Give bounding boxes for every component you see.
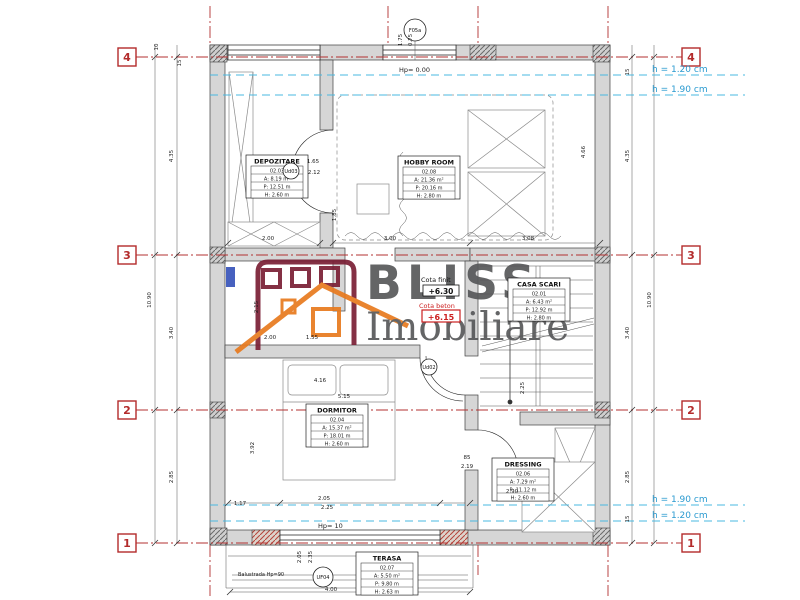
dimension-label: 2.85 <box>625 470 631 483</box>
room-label-dressing: DRESSING02.06A: 7.29 m²P: 11.12 mH: 2.60… <box>492 458 554 502</box>
element-tag-ud02: Ud02 <box>421 359 437 375</box>
room-code: 02.06 <box>516 472 530 478</box>
dimension-label: 2.05 <box>318 496 331 502</box>
svg-text:2: 2 <box>687 404 695 417</box>
dimension-label: 3.40 <box>169 326 175 339</box>
dimension-label: 1.55 <box>306 335 319 341</box>
room-code: 02.08 <box>422 170 436 176</box>
dimension-label: 2.00 <box>264 335 277 341</box>
dimension-label: 2.12 <box>308 170 320 176</box>
dimension-label: 3.92 <box>250 442 256 454</box>
room-height: H: 2.80 m <box>417 194 442 200</box>
logo-window-orange-icon <box>313 309 339 335</box>
room-height: H: 2.80 m <box>527 316 552 322</box>
room-name: DORMITOR <box>317 407 357 415</box>
svg-text:1: 1 <box>687 537 695 550</box>
room-code: 02.04 <box>330 418 344 424</box>
tag-label: F05a <box>409 28 421 34</box>
logo-window-icon <box>292 269 309 286</box>
room-area: A: 6.43 m² <box>526 300 552 306</box>
tag-label: UF04 <box>317 575 330 581</box>
dimension-label: 4.35 <box>169 149 175 162</box>
dimension-label: 15 <box>625 68 631 75</box>
dimension-label: 4.16 <box>314 378 327 384</box>
element-tag-ud03: Ud03 <box>283 163 299 179</box>
room-area: A: 5.50 m² <box>374 574 400 580</box>
cota-beton-label: Cota beton <box>419 302 455 310</box>
dimension-label: 2.25 <box>520 381 526 394</box>
room-code: 02.01 <box>532 292 546 298</box>
height-label-bottom-1: h = 1.90 cm <box>652 495 708 505</box>
height-label-bottom-2: h = 1.20 cm <box>652 511 708 521</box>
room-label-dormitor: DORMITOR02.04A: 15.37 m²P: 18.01 mH: 2.6… <box>306 404 368 448</box>
room-perimeter: P: 12.92 m <box>525 308 552 314</box>
room-height: H: 2.63 m <box>375 590 400 596</box>
room-height: H: 2.60 m <box>511 496 536 502</box>
dimension-label: 2.15 <box>254 300 260 313</box>
room-perimeter: P: 20.16 m <box>415 186 442 192</box>
grid-bubble-right-3: 3 <box>682 246 700 264</box>
room-code: 02.03 <box>270 169 284 175</box>
annotation-text: Hp= 10 <box>318 522 343 530</box>
room-name: DRESSING <box>504 461 541 469</box>
svg-text:4: 4 <box>123 51 131 64</box>
svg-text:2: 2 <box>123 404 131 417</box>
svg-text:4: 4 <box>687 51 695 64</box>
dimension-label: 1.85 <box>332 208 338 221</box>
height-label-top-1: h = 1.20 cm <box>652 65 708 75</box>
room-area: A: 7.29 m² <box>510 480 536 486</box>
room-name: HOBBY ROOM <box>404 159 454 167</box>
grid-bubble-right-1: 1 <box>682 534 700 552</box>
dimension-label: 10.90 <box>647 292 653 308</box>
dimension-label: 4.66 <box>581 145 587 158</box>
tag-label: Ud02 <box>422 365 435 371</box>
tag-label: Ud03 <box>284 169 297 175</box>
dimension-label: 4.00 <box>325 587 338 593</box>
floor-plan-page: 4 3 2 1 4 3 2 1 h = 1.20 cm h = 1.90 cm … <box>0 0 800 600</box>
svg-text:3: 3 <box>687 249 695 262</box>
grid-bubble-left-2: 2 <box>118 401 136 419</box>
dimension-label: 3.08 <box>522 236 535 242</box>
floor-plan-drawing: 4 3 2 1 4 3 2 1 h = 1.20 cm h = 1.90 cm … <box>0 0 800 600</box>
cota-finit-value: +6.30 <box>429 287 454 296</box>
room-perimeter: P: 9.80 m <box>375 582 399 588</box>
grid-bubble-right-4: 4 <box>682 48 700 66</box>
dimension-label: 2.19 <box>461 464 474 470</box>
annotation-text: Hp= 0.00 <box>399 66 430 74</box>
dimension-label: 2.90 <box>506 489 519 495</box>
dimension-label: 10 <box>154 43 160 50</box>
dimension-label: 85 <box>464 455 471 461</box>
room-code: 02.07 <box>380 566 394 572</box>
room-name: TERASA <box>373 555 402 563</box>
dimension-label: 15 <box>177 59 183 66</box>
dimension-label: 15 <box>625 515 631 522</box>
height-label-top-2: h = 1.90 cm <box>652 85 708 95</box>
logo-window-icon <box>263 270 280 287</box>
room-label-terasa: TERASA02.07A: 5.50 m²P: 9.80 mH: 2.63 m <box>356 552 418 596</box>
room-perimeter: P: 18.01 m <box>323 434 350 440</box>
cota-beton-value: +6.15 <box>428 313 455 322</box>
dimension-label: 4.35 <box>625 149 631 162</box>
room-area: A: 21.36 m² <box>414 178 443 184</box>
dimension-label: 2.05 <box>297 550 303 563</box>
grid-bubble-left-3: 3 <box>118 246 136 264</box>
dimension-label: 1.65 <box>307 159 320 165</box>
room-height: H: 2.60 m <box>265 193 290 199</box>
dimension-label: 3.40 <box>625 326 631 339</box>
cota-finit-label: Cota finit <box>421 276 451 284</box>
annotation-text: Balustrada Hp=90 <box>238 572 284 578</box>
room-label-depozitare: DEPOZITARE02.03A: 8.19 m²P: 12.51 mH: 2.… <box>246 155 308 199</box>
room-perimeter: P: 12.51 m <box>263 185 290 191</box>
room-label-hobby-room: HOBBY ROOM02.08A: 21.36 m²P: 20.16 mH: 2… <box>398 156 460 200</box>
svg-text:1: 1 <box>123 537 131 550</box>
dimension-label: 10.90 <box>147 292 153 308</box>
dimension-label: 2.35 <box>308 550 314 563</box>
dimension-label: 5.15 <box>338 394 351 400</box>
terrace <box>226 545 473 588</box>
room-area: A: 15.37 m² <box>322 426 351 432</box>
dimension-label: 3.00 <box>384 236 397 242</box>
dimension-label: 1.75 <box>398 33 404 46</box>
element-tag-uf04: UF04 <box>313 567 333 587</box>
dimension-label: 2.85 <box>169 470 175 483</box>
grid-bubble-left-1: 1 <box>118 534 136 552</box>
room-name: CASA SCARI <box>517 281 561 289</box>
room-height: H: 2.60 m <box>325 442 350 448</box>
svg-text:3: 3 <box>123 249 131 262</box>
dimension-label: 2.00 <box>262 236 275 242</box>
dimension-label: 2.25 <box>321 505 334 511</box>
dimension-label: 0.75 <box>408 33 414 46</box>
grid-bubble-right-2: 2 <box>682 401 700 419</box>
room-label-casa-scari: CASA SCARI02.01A: 6.43 m²P: 12.92 mH: 2.… <box>508 278 570 322</box>
dimension-label: 1.17 <box>234 501 247 507</box>
grid-bubble-left-4: 4 <box>118 48 136 66</box>
